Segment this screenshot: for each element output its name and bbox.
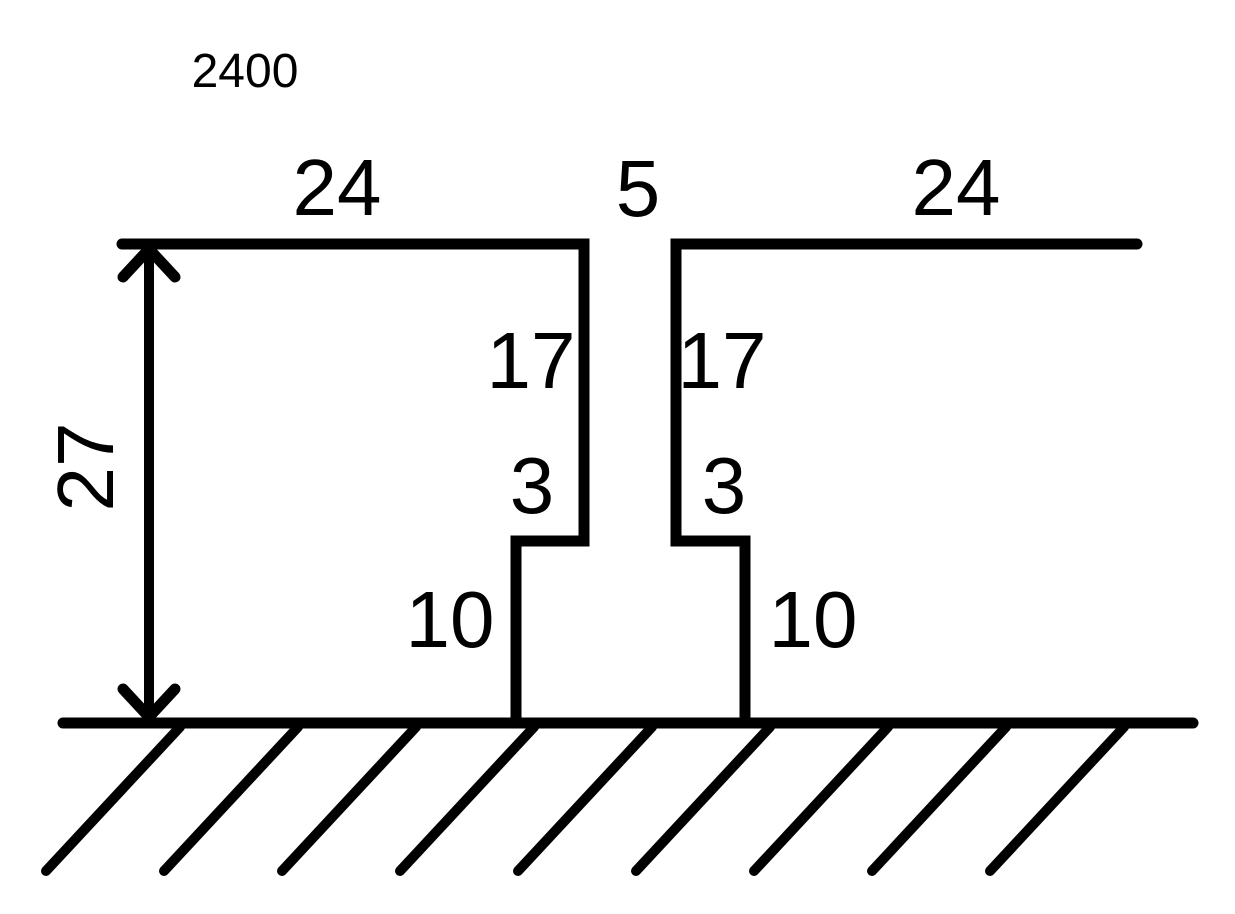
hatch-line <box>282 727 416 871</box>
label-right-base-height: 10 <box>769 575 858 664</box>
label-total-height: 27 <box>41 423 130 512</box>
hatch-line <box>46 727 180 871</box>
technical-drawing-canvas: 2400 24 5 24 17 17 3 3 10 10 27 <box>0 0 1235 914</box>
hatch-line <box>164 727 298 871</box>
note-2400: 2400 <box>192 45 299 98</box>
label-right-top-width: 24 <box>912 143 1001 232</box>
hatch-line <box>518 727 652 871</box>
label-gap-width: 5 <box>616 144 661 233</box>
hatch-line <box>636 727 770 871</box>
hatch-line <box>990 727 1124 871</box>
label-right-step-width: 3 <box>702 441 747 530</box>
label-left-base-height: 10 <box>406 575 495 664</box>
label-right-inner-depth: 17 <box>678 316 767 405</box>
label-left-step-width: 3 <box>510 441 555 530</box>
label-left-inner-depth: 17 <box>487 316 576 405</box>
ground-hatching <box>46 727 1124 871</box>
hatch-line <box>754 727 888 871</box>
label-left-top-width: 24 <box>293 143 382 232</box>
hatch-line <box>872 727 1006 871</box>
cross-section-diagram: 2400 24 5 24 17 17 3 3 10 10 27 <box>0 0 1235 914</box>
hatch-line <box>400 727 534 871</box>
height-dimension-arrow <box>123 249 175 717</box>
drawing-strokes <box>46 244 1193 871</box>
